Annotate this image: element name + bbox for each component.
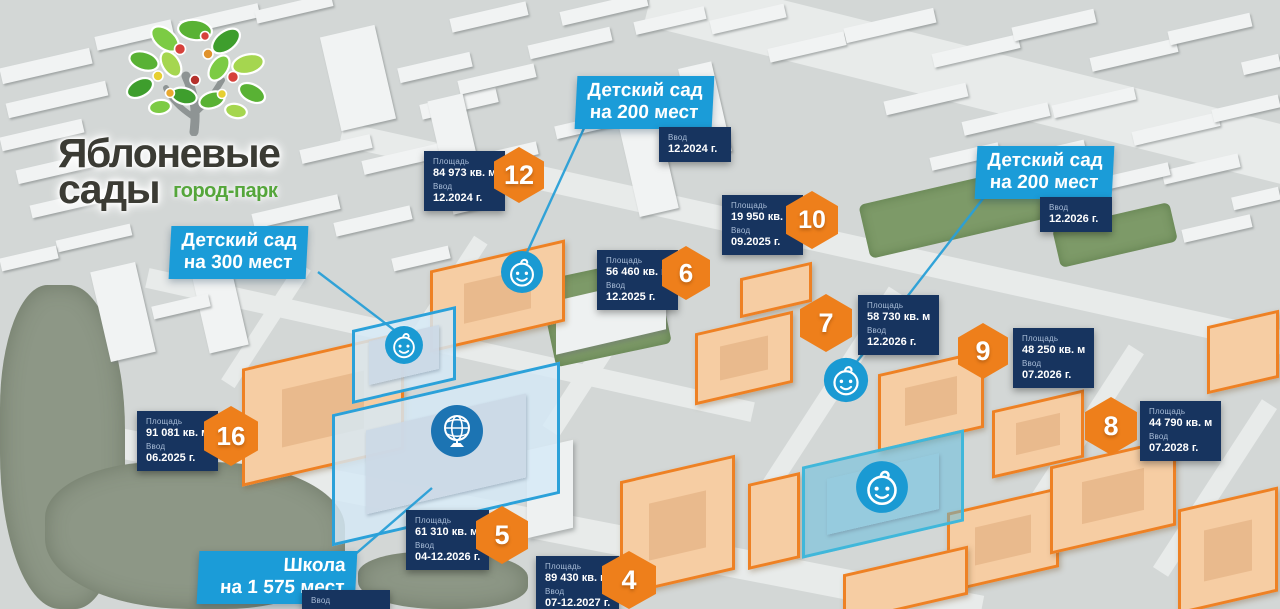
plot-info-card-9: Площадь 48 250 кв. м Ввод 07.2026 г.: [1013, 328, 1094, 388]
commissioning-label: Ввод: [606, 281, 669, 290]
facility-label-line: Детский сад: [987, 150, 1103, 172]
commissioning-label: Ввод: [668, 133, 722, 142]
facility-label-line: на 200 мест: [586, 102, 702, 124]
area-value: 91 081 кв. м: [146, 427, 209, 439]
logo-title-line2: сады: [58, 171, 159, 207]
logo-tree-icon: [110, 14, 310, 136]
facility-label-line: Детский сад: [587, 80, 703, 102]
commissioning-value: 12.2025 г.: [606, 291, 669, 303]
commissioning-value: 12.2024 г.: [668, 143, 722, 155]
logo-tagline: город-парк: [173, 180, 277, 207]
facility-label-kindergarten-300: Детский сад на 300 мест: [169, 226, 309, 279]
commissioning-label: Ввод: [731, 226, 794, 235]
area-value: 19 950 кв. м: [731, 211, 794, 223]
area-value: 84 973 кв. м: [433, 167, 496, 179]
plot-badge-7[interactable]: 7: [800, 294, 852, 352]
kindergarten-200-east-commissioning-card: Ввод 12.2026 г.: [1040, 197, 1112, 232]
commissioning-value: 07.2028 г.: [1149, 442, 1212, 454]
area-label: Площадь: [146, 417, 209, 426]
commissioning-value: 12.2024 г.: [433, 192, 496, 204]
commissioning-label: Ввод: [433, 182, 496, 191]
project-logo: Яблоневые сады город-парк: [58, 14, 338, 207]
area-value: 48 250 кв. м: [1022, 344, 1085, 356]
commissioning-value: 04-12.2026 г.: [415, 551, 480, 563]
school-commissioning-card: Ввод: [302, 590, 390, 609]
facility-label-line: Школа: [209, 555, 346, 577]
masterplan-canvas: Детский сад на 300 мест Детский сад на 2…: [0, 0, 1280, 609]
commissioning-label: Ввод: [1022, 359, 1085, 368]
plot-badge-8[interactable]: 8: [1085, 397, 1137, 455]
commissioning-value: 07.2026 г.: [1022, 369, 1085, 381]
commissioning-label: Ввод: [867, 326, 930, 335]
kindergarten-200-center-commissioning-card: Ввод 12.2024 г.: [659, 127, 731, 162]
commissioning-label: Ввод: [311, 596, 381, 605]
area-label: Площадь: [1022, 334, 1085, 343]
commissioning-value: 12.2026 г.: [867, 336, 930, 348]
commissioning-label: Ввод: [1049, 203, 1103, 212]
area-label: Площадь: [731, 201, 794, 210]
facility-label-kindergarten-200-center: Детский сад на 200 мест: [575, 76, 715, 129]
area-value: 56 460 кв. м: [606, 266, 669, 278]
area-label: Площадь: [545, 562, 610, 571]
area-label: Площадь: [606, 256, 669, 265]
area-label: Площадь: [867, 301, 930, 310]
facility-label-line: на 200 мест: [986, 172, 1102, 194]
area-value: 44 790 кв. м: [1149, 417, 1212, 429]
commissioning-value: 06.2025 г.: [146, 452, 209, 464]
plot-info-card-7: Площадь 58 730 кв. м Ввод 12.2026 г.: [858, 295, 939, 355]
commissioning-label: Ввод: [415, 541, 480, 550]
facility-label-kindergarten-200-east: Детский сад на 200 мест: [975, 146, 1115, 199]
plot-badge-9[interactable]: 9: [958, 323, 1008, 379]
commissioning-label: Ввод: [1149, 432, 1212, 441]
plot-info-card-12: Площадь 84 973 кв. м Ввод 12.2024 г.: [424, 151, 505, 211]
facility-label-line: на 300 мест: [180, 252, 296, 274]
commissioning-label: Ввод: [146, 442, 209, 451]
plot-info-card-8: Площадь 44 790 кв. м Ввод 07.2028 г.: [1140, 401, 1221, 461]
facility-label-line: Детский сад: [181, 230, 297, 252]
annotation-layer: Детский сад на 300 мест Детский сад на 2…: [0, 0, 1280, 609]
commissioning-value: 12.2026 г.: [1049, 213, 1103, 225]
area-label: Площадь: [415, 516, 480, 525]
area-value: 58 730 кв. м: [867, 311, 930, 323]
commissioning-value: 07-12.2027 г.: [545, 597, 610, 609]
area-label: Площадь: [1149, 407, 1212, 416]
area-label: Площадь: [433, 157, 496, 166]
commissioning-value: 09.2025 г.: [731, 236, 794, 248]
area-value: 61 310 кв. м: [415, 526, 480, 538]
commissioning-label: Ввод: [545, 587, 610, 596]
area-value: 89 430 кв. м: [545, 572, 610, 584]
